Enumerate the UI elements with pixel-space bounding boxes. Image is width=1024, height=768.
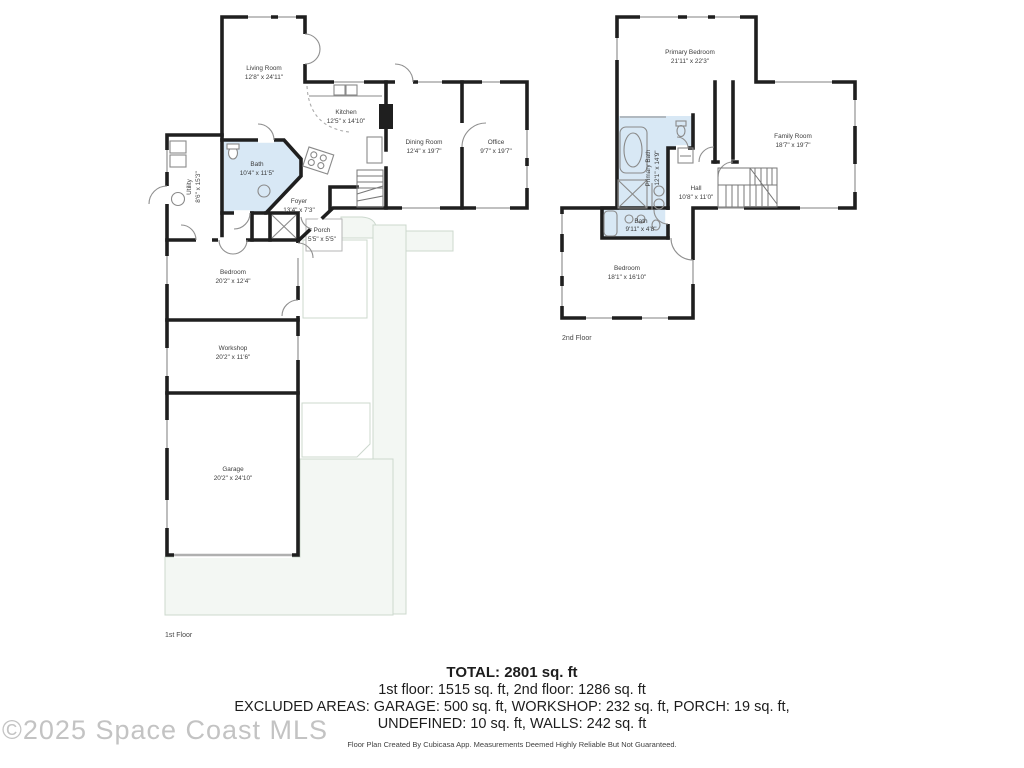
driveway-arm <box>406 231 453 251</box>
label-primary-bath: Primary Bath <box>645 149 652 186</box>
dims-living-room: 12'8" x 24'11" <box>245 74 283 81</box>
dims-porch: 5'5" x 5'5" <box>308 236 336 243</box>
label-foyer: Foyer <box>291 198 308 205</box>
dims-bedroom-2: 18'1" x 16'10" <box>608 274 647 281</box>
label-hall: Hall <box>690 185 701 192</box>
total-area: TOTAL: 2801 sq. ft <box>0 664 1024 682</box>
watermark: ©2025 Space Coast MLS <box>2 715 328 746</box>
dims-bedroom-1: 20'2" x 12'4" <box>215 278 250 285</box>
label-garage: Garage <box>222 466 244 473</box>
label-dining-room: Dining Room <box>406 139 443 146</box>
label-primary-bedroom: Primary Bedroom <box>665 49 715 56</box>
dims-office: 9'7" x 19'7" <box>480 148 512 155</box>
label-bedroom-2: Bedroom <box>614 265 640 272</box>
dims-garage: 20'2" x 24'10" <box>214 475 253 482</box>
excluded-areas-1: EXCLUDED AREAS: GARAGE: 500 sq. ft, WORK… <box>0 699 1024 716</box>
floor2-label: 2nd Floor <box>562 335 592 342</box>
label-utility: Utility <box>186 178 193 194</box>
dims-primary-bedroom: 21'11" x 22'3" <box>671 58 709 65</box>
floor-areas: 1st floor: 1515 sq. ft, 2nd floor: 1286 … <box>0 682 1024 699</box>
floor1-label: 1st Floor <box>165 632 193 639</box>
porch-outline <box>306 219 342 251</box>
label-bath-2: Bath <box>634 218 648 225</box>
dryer <box>170 155 186 167</box>
walkway <box>341 217 376 238</box>
dims-utility: 8'6" x 15'3" <box>195 171 202 203</box>
label-office: Office <box>488 139 505 146</box>
label-porch: Porch <box>314 227 331 234</box>
dims-family-room: 18'7" x 19'7" <box>775 142 810 149</box>
dims-primary-bath: 12'1" x 14'9" <box>654 150 661 185</box>
dims-foyer: 13'4" x 7'3" <box>283 207 315 214</box>
fridge <box>367 137 382 163</box>
dims-workshop: 20'2" x 11'6" <box>216 354 251 361</box>
patio-outline <box>303 240 367 318</box>
label-kitchen: Kitchen <box>335 109 357 116</box>
dims-kitchen: 12'5" x 14'10" <box>327 118 366 125</box>
floor2-plan: Primary Bedroom 21'11" x 22'3" Family Ro… <box>562 17 855 342</box>
label-workshop: Workshop <box>219 345 248 352</box>
dims-hall: 10'8" x 11'0" <box>679 194 714 201</box>
dims-bath-1: 10'4" x 11'5" <box>240 170 275 177</box>
label-bath-1: Bath <box>250 161 264 168</box>
label-living-room: Living Room <box>246 65 282 72</box>
washer <box>170 141 186 153</box>
dims-bath-2: 9'11" x 4'8" <box>625 226 656 233</box>
floor-plan-drawing: Living Room 12'8" x 24'11" Kitchen 12'5"… <box>0 0 1024 768</box>
dims-dining-room: 12'4" x 19'7" <box>406 148 441 155</box>
chimney <box>379 104 393 129</box>
floor-plan-page: Living Room 12'8" x 24'11" Kitchen 12'5"… <box>0 0 1024 768</box>
label-bedroom-1: Bedroom <box>220 269 246 276</box>
pad-outline <box>302 403 370 457</box>
label-family-room: Family Room <box>774 133 812 140</box>
